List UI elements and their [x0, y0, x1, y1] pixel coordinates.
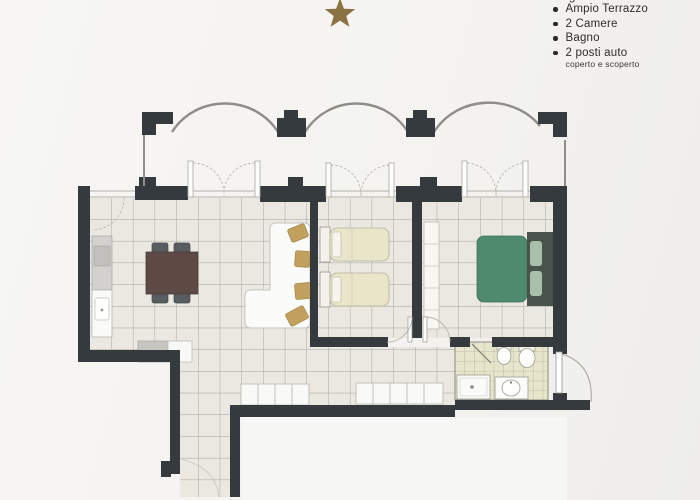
single-bed-2 [320, 272, 389, 307]
feature-sublabel: coperto e scoperto [566, 60, 640, 69]
dining-table [146, 252, 198, 294]
list-item: 2 Camere [553, 17, 648, 32]
feature-label: Bagno [566, 31, 600, 46]
bullet-icon [553, 7, 558, 12]
list-item: 2 posti auto coperto e scoperto [553, 46, 648, 70]
list-item: Bagno [553, 31, 648, 46]
bedroom1-floor [318, 198, 412, 338]
feature-list: Ampio Terrazzo 2 Camere Bagno 2 posti au… [553, 2, 648, 69]
entrance-door-leaf [556, 352, 562, 393]
dining-table-set [146, 243, 198, 303]
toilet [519, 349, 535, 368]
wardrobe-column [424, 222, 439, 329]
bullet-icon [553, 51, 558, 56]
feature-label: 2 posti auto [566, 47, 628, 59]
bullet-icon [553, 36, 558, 41]
parapet-arches [144, 103, 565, 186]
list-item: Ampio Terrazzo [553, 2, 648, 17]
bullet-icon [553, 22, 558, 27]
star-icon [325, 0, 355, 27]
double-bed [477, 232, 553, 306]
single-bed-1 [320, 227, 389, 262]
page: g Ampio Terrazzo 2 Camere Bagno 2 posti … [0, 0, 700, 500]
floor-plan [0, 0, 700, 500]
feature-label: 2 Camere [566, 17, 618, 32]
terrace-pillars [142, 110, 567, 137]
bidet [497, 348, 511, 365]
exterior-area [242, 417, 567, 500]
feature-label: Ampio Terrazzo [566, 2, 648, 17]
